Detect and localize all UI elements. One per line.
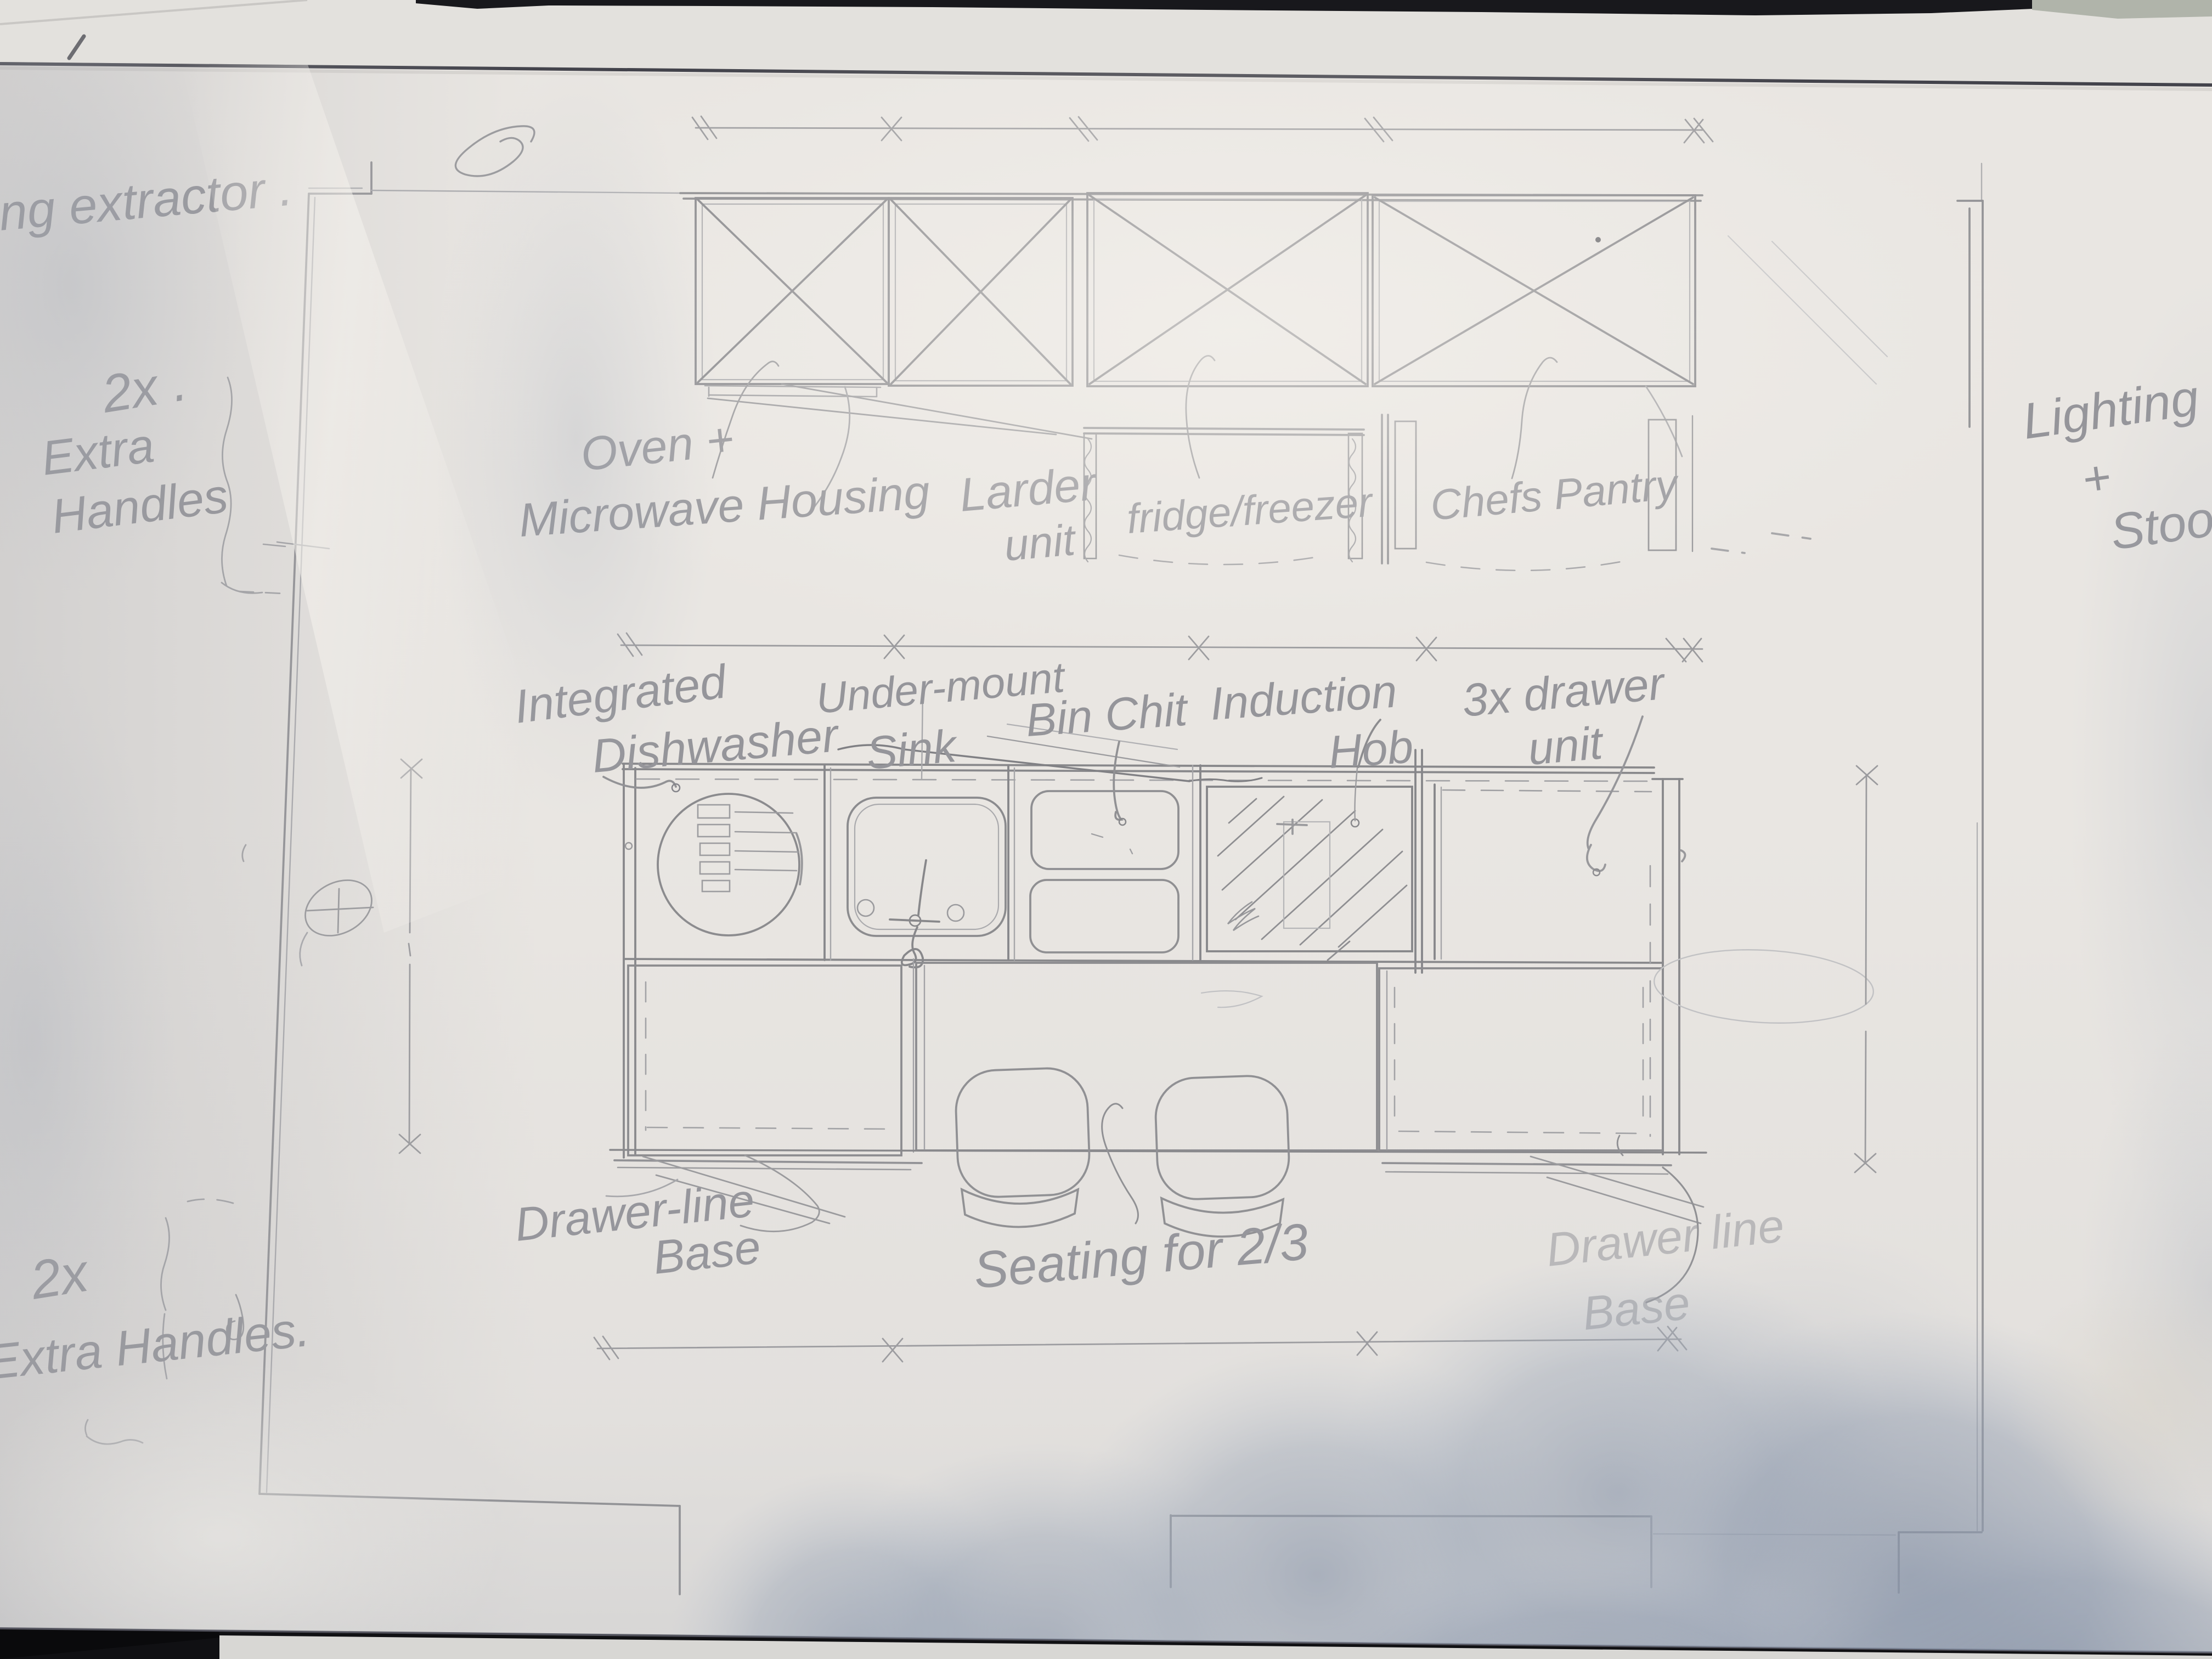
svg-text:unit: unit	[1526, 716, 1606, 775]
svg-text:Sink: Sink	[864, 720, 960, 779]
svg-text:Hob: Hob	[1327, 720, 1415, 778]
